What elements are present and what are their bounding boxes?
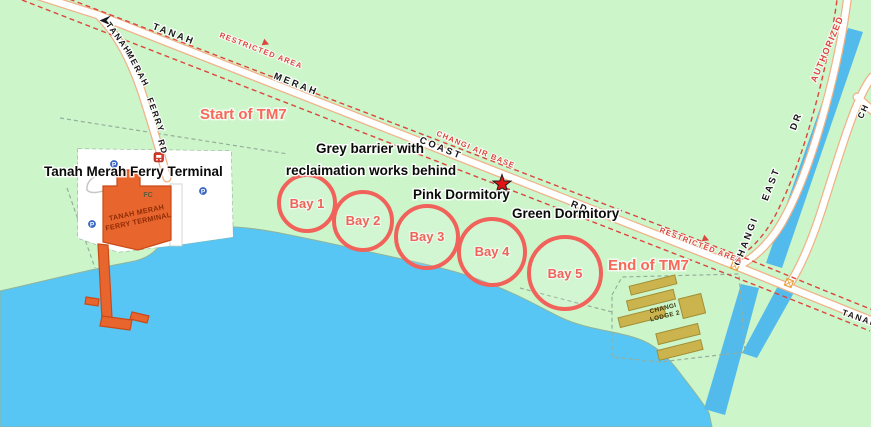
svg-text:P: P (201, 188, 206, 195)
bay-5-label: Bay 5 (548, 266, 583, 281)
bay-3-label: Bay 3 (410, 229, 445, 244)
barrier-annotation-line1: Grey barrier with (316, 141, 424, 156)
terminal-side-road (170, 184, 182, 246)
map-viewport[interactable]: TANAH MERAH FERRY TERMINAL FC P P P (0, 0, 871, 427)
end-tm7-annotation: End of TM7 (608, 257, 689, 274)
parking-icon: P (88, 220, 97, 229)
barrier-annotation-line2: reclaimation works behind (286, 163, 456, 178)
svg-text:P: P (90, 221, 95, 228)
pink-dormitory-annotation: Pink Dormitory (413, 187, 510, 202)
bay-2-label: Bay 2 (346, 213, 381, 228)
parking-icon: P (199, 187, 208, 196)
pier-arm-west (85, 297, 99, 306)
gate-icon (784, 278, 793, 287)
ferry-terminal-annotation: Tanah Merah Ferry Terminal (44, 164, 223, 179)
map-canvas[interactable]: TANAH MERAH FERRY TERMINAL FC P P P (0, 0, 871, 427)
bay-4-label: Bay 4 (475, 244, 510, 259)
green-dormitory-annotation: Green Dormitory (512, 206, 620, 221)
bay-1-label: Bay 1 (290, 196, 325, 211)
start-tm7-annotation: Start of TM7 (200, 106, 287, 123)
fc-label: FC (143, 192, 152, 199)
